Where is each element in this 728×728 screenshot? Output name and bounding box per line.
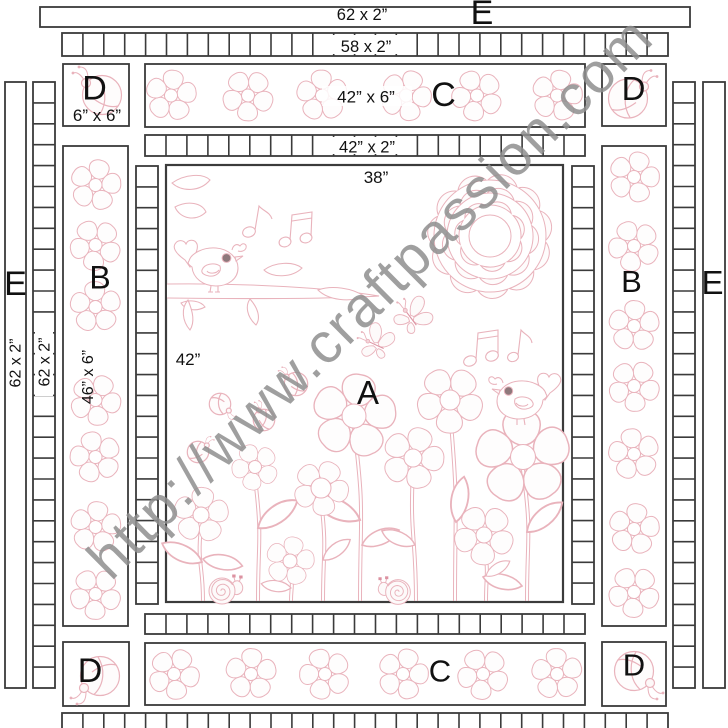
svg-text:B: B [621,264,642,299]
svg-text:C: C [431,76,456,114]
svg-text:62 x 2”: 62 x 2” [37,338,54,387]
svg-text:D: D [623,648,645,683]
svg-text:E: E [471,0,494,32]
svg-text:62 x 2”: 62 x 2” [8,339,25,388]
svg-text:E: E [4,265,27,303]
svg-text:38”: 38” [364,168,389,187]
svg-text:D: D [78,652,103,690]
svg-text:42” x 2”: 42” x 2” [339,139,395,157]
svg-text:42”: 42” [176,350,201,369]
svg-text:46” x 6”: 46” x 6” [80,350,97,404]
svg-text:6” x 6”: 6” x 6” [73,106,122,125]
svg-text:42” x 6”: 42” x 6” [337,88,395,107]
svg-text:D: D [82,70,107,108]
svg-text:C: C [429,654,451,689]
svg-text:E: E [701,264,723,301]
svg-text:58 x 2”: 58 x 2” [341,38,391,56]
svg-text:62 x 2”: 62 x 2” [337,6,387,24]
svg-text:A: A [357,374,379,411]
svg-text:B: B [89,260,110,296]
